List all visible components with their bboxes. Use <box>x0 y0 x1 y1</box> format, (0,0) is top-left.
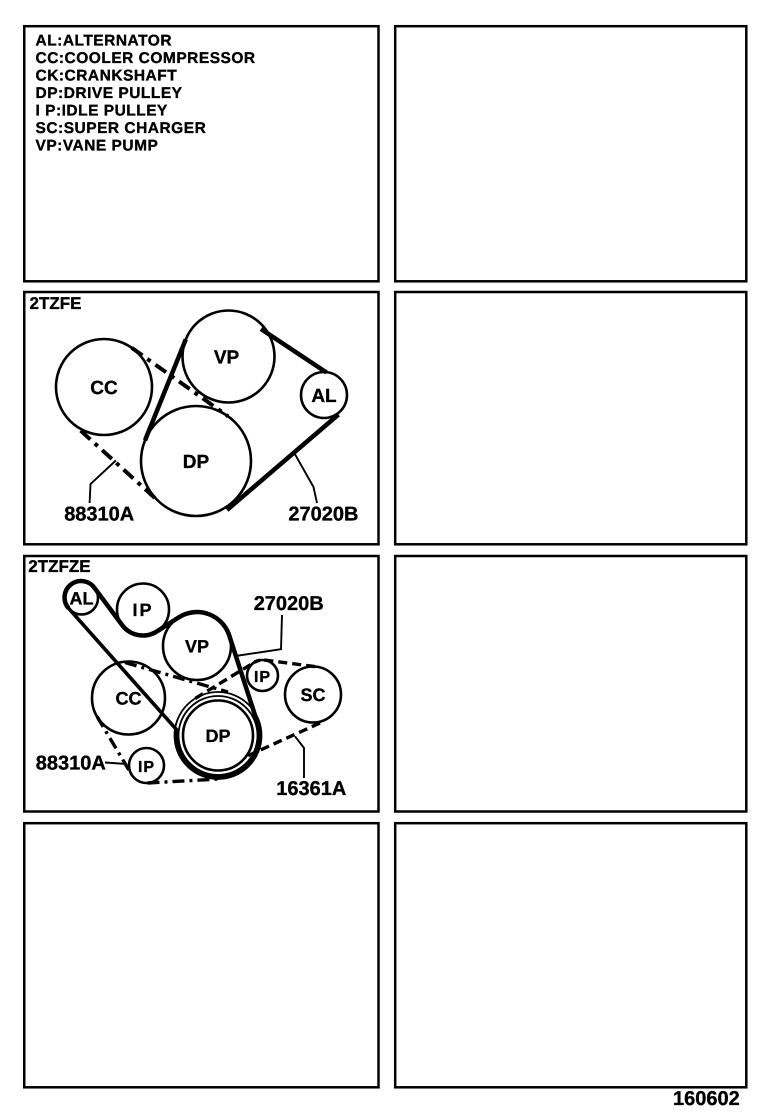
svg-text:88310A: 88310A <box>64 504 134 526</box>
svg-text:AL:ALTERNATOR: AL:ALTERNATOR <box>36 32 173 49</box>
svg-text:VP:VANE PUMP: VP:VANE PUMP <box>36 137 159 154</box>
svg-text:88310A: 88310A <box>36 753 106 775</box>
svg-text:160602: 160602 <box>673 1088 740 1110</box>
svg-text:DP:DRIVE PULLEY: DP:DRIVE PULLEY <box>36 85 183 102</box>
svg-text:27020B: 27020B <box>254 593 324 615</box>
svg-text:2TZFZE: 2TZFZE <box>28 557 90 576</box>
svg-text:AL: AL <box>311 386 337 407</box>
svg-text:2TZFE: 2TZFE <box>30 294 82 313</box>
svg-text:CC: CC <box>116 689 142 709</box>
svg-text:DP: DP <box>205 726 230 746</box>
svg-text:I P:IDLE PULLEY: I P:IDLE PULLEY <box>36 102 169 119</box>
svg-text:SC: SC <box>300 685 325 705</box>
svg-text:CC: CC <box>90 378 118 399</box>
svg-text:16361A: 16361A <box>276 778 346 800</box>
svg-text:VP: VP <box>214 348 240 369</box>
svg-text:CK:CRANKSHAFT: CK:CRANKSHAFT <box>36 67 178 84</box>
svg-text:VP: VP <box>185 637 209 657</box>
svg-text:IP: IP <box>138 759 155 776</box>
svg-text:DP: DP <box>183 452 210 473</box>
svg-text:IP: IP <box>132 600 153 620</box>
svg-text:27020B: 27020B <box>288 504 358 526</box>
svg-text:CC:COOLER COMPRESSOR: CC:COOLER COMPRESSOR <box>36 50 256 67</box>
svg-text:SC:SUPER CHARGER: SC:SUPER CHARGER <box>36 120 207 137</box>
svg-text:AL: AL <box>70 589 94 609</box>
svg-text:IP: IP <box>254 669 271 686</box>
